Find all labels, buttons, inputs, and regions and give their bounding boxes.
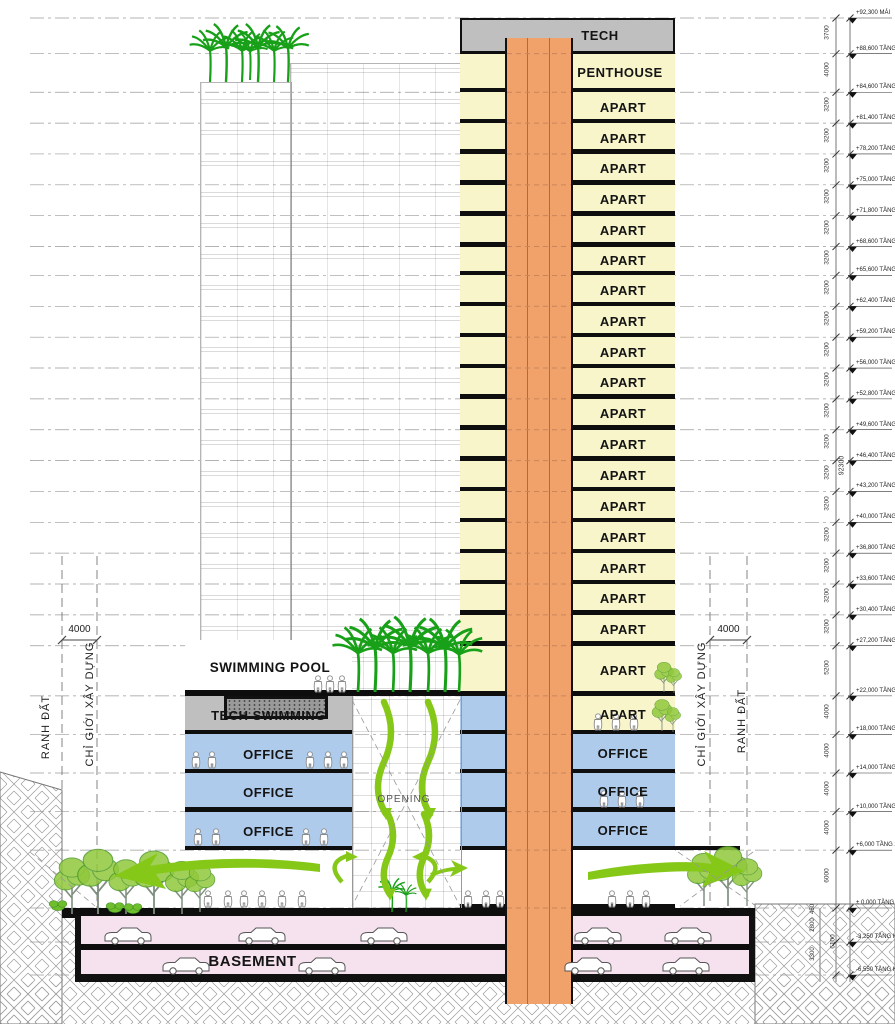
tower-floor-label: APART <box>571 561 675 576</box>
floor-height-dim: 3200 <box>824 184 831 210</box>
floor-height-dim: 3200 <box>824 305 831 331</box>
elevation-label: +33,600 TẦNG 9 <box>856 576 895 582</box>
overall-height-dim: 92300 <box>839 453 846 479</box>
tower-floor-label: TECH <box>552 28 648 43</box>
floor-height-dim: 3200 <box>824 552 831 578</box>
floor-height-dim: 4000 <box>824 737 831 763</box>
property-line-label-left: RANH ĐẤT <box>40 657 52 797</box>
tower-floor-label: APART <box>571 161 675 176</box>
tower-floor-label: APART <box>571 406 675 421</box>
basement-label: BASEMENT <box>185 953 320 970</box>
elevation-label: +56,000 TẦNG 16 <box>856 360 895 366</box>
floor-height-dim: 4000 <box>824 814 831 840</box>
floor-height-dim: 3700 <box>824 19 831 45</box>
elevation-label: +92,300 MÁI <box>856 10 890 16</box>
floor-height-dim: 3200 <box>824 583 831 609</box>
podium-floor-label: OFFICE <box>185 824 352 839</box>
tower-floor-label: APART <box>571 468 675 483</box>
tower-floor-label: APART <box>571 223 675 238</box>
elevation-label: +59,200 TẦNG 17 <box>856 329 895 335</box>
elevation-label: +88,600 TẦNG KỸ 1 <box>856 46 895 52</box>
tower-floor-label: APART <box>571 283 675 298</box>
tower-floor-label: APART <box>571 345 675 360</box>
tower-floor-label: OFFICE <box>571 823 675 838</box>
tower-floor-label: OFFICE <box>571 784 675 799</box>
elevation-label: +36,800 TẦNG 10 <box>856 545 895 551</box>
opening-label: OPENING <box>371 794 437 805</box>
elevation-label: +27,200 TẦNG 7 <box>856 638 895 644</box>
tower-floor-label: APART <box>571 314 675 329</box>
tower-floor-label: APART <box>571 253 675 268</box>
floor-height-dim: 3200 <box>824 367 831 393</box>
labels-layer: SWIMMING POOL OPENING BASEMENT RANH ĐẤT … <box>0 0 895 1024</box>
tower-floor-label: APART <box>571 530 675 545</box>
floor-height-dim: 3200 <box>824 274 831 300</box>
elevation-label: -6,550 TẦNG HẦM 2 <box>856 967 895 973</box>
floor-height-dim: 3200 <box>824 614 831 640</box>
tower-floor-label: APART <box>571 622 675 637</box>
elevation-label: +81,400 TẦNG 24 <box>856 115 895 121</box>
tower-floor-label: APART <box>571 437 675 452</box>
floor-height-dim: 3200 <box>824 490 831 516</box>
setback-dim-right: 4000 <box>710 624 747 635</box>
tower-floor-label: APART <box>571 100 675 115</box>
floor-height-dim: 3200 <box>824 244 831 270</box>
tower-floor-label: APART <box>571 591 675 606</box>
elevation-label: +65,600 TẦNG 19 <box>856 267 895 273</box>
basement-height-dim: 3300 <box>810 941 816 967</box>
elevation-label: +62,400 TẦNG 18 <box>856 298 895 304</box>
tower-floor-label: APART <box>571 707 675 722</box>
floor-height-dim: 4000 <box>824 699 831 725</box>
tower-floor-label: PENTHOUSE <box>565 65 675 80</box>
setback-dim-left: 4000 <box>62 624 97 635</box>
elevation-label: +71,800 TẦNG 21 <box>856 208 895 214</box>
floor-height-dim: 3200 <box>824 336 831 362</box>
floor-height-dim: 3200 <box>824 215 831 241</box>
podium-floor-label: OFFICE <box>185 785 352 800</box>
floor-height-dim: 3200 <box>824 398 831 424</box>
floor-height-dim: 3200 <box>824 521 831 547</box>
elevation-label: +52,800 TẦNG 15 <box>856 391 895 397</box>
floor-height-dim: 3200 <box>824 122 831 148</box>
floor-height-dim: 3200 <box>824 91 831 117</box>
elevation-label: +22,000 TẦNG 6 <box>856 688 895 694</box>
building-section-drawing: SWIMMING POOL OPENING BASEMENT RANH ĐẤT … <box>0 0 895 1024</box>
swimming-pool-label: SWIMMING POOL <box>195 660 345 675</box>
elevation-label: +6,000 TẦNG 2 <box>856 842 895 848</box>
construction-line-label-left: CHỈ GIỚI XÂY DỰNG <box>84 634 96 774</box>
tower-floor-label: APART <box>571 375 675 390</box>
elevation-label: +18,000 TẦNG 5 <box>856 726 895 732</box>
tower-floor-label: OFFICE <box>571 746 675 761</box>
podium-floor-label: OFFICE <box>185 747 352 762</box>
elevation-label: +78,200 TẦNG 23 <box>856 146 895 152</box>
tower-floor-label: APART <box>571 131 675 146</box>
floor-height-dim: 5200 <box>824 654 831 680</box>
construction-line-label-right: CHỈ GIỚI XÂY DỰNG <box>696 634 708 774</box>
floor-height-dim: 3200 <box>824 429 831 455</box>
floor-height-dim: 4000 <box>824 56 831 82</box>
elevation-label: +10,000 TẦNG 3 <box>856 804 895 810</box>
elevation-label: +30,400 TẦNG 8 <box>856 607 895 613</box>
elevation-label: +84,600 TẦNG 25 <box>856 84 895 90</box>
tower-floor-label: APART <box>571 499 675 514</box>
elevation-label: +46,400 TẦNG 13 <box>856 453 895 459</box>
elevation-label: +75,000 TẦNG 22 <box>856 177 895 183</box>
podium-floor-label: TECH SWIMMING <box>185 708 352 723</box>
tower-floor-label: APART <box>571 192 675 207</box>
basement-height-dim: 2800 <box>810 912 816 938</box>
floor-height-dim: 6000 <box>824 863 831 889</box>
basement-depth-dim: 6100 <box>830 929 837 955</box>
elevation-label: +68,600 TẦNG 20 <box>856 239 895 245</box>
elevation-label: -3,250 TẦNG HẦM 1 <box>856 934 895 940</box>
floor-height-dim: 4000 <box>824 776 831 802</box>
property-line-label-right: RANH ĐẤT <box>736 651 748 791</box>
floor-height-dim: 3200 <box>824 153 831 179</box>
elevation-label: +43,200 TẦNG 12 <box>856 483 895 489</box>
elevation-label: +40,000 TẦNG 11 <box>856 514 895 520</box>
floor-height-dim: 3200 <box>824 460 831 486</box>
elevation-label: +14,000 TẦNG 4 <box>856 765 895 771</box>
elevation-label: +49,600 TẦNG 14 <box>856 422 895 428</box>
elevation-label: ± 0,000 TẦNG 1 <box>856 900 895 906</box>
tower-floor-label: APART <box>571 663 675 678</box>
